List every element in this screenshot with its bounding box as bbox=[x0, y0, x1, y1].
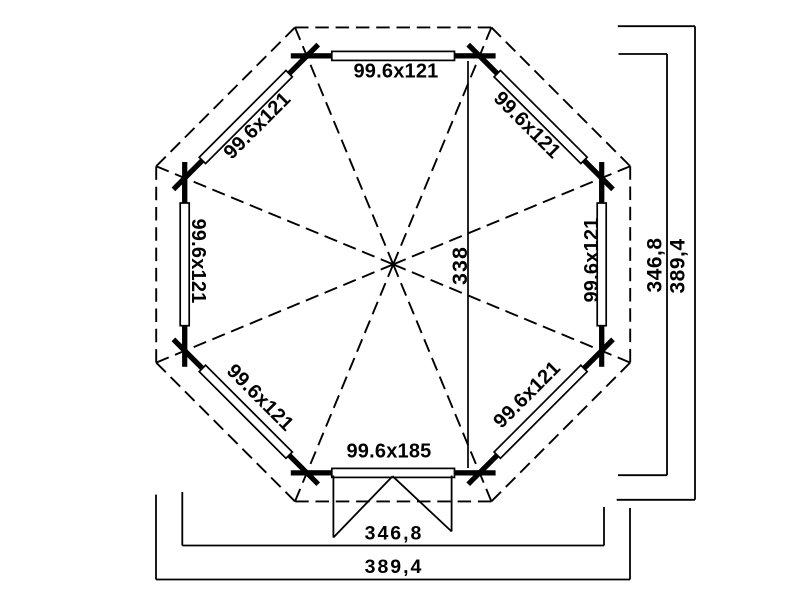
svg-text:338: 338 bbox=[448, 246, 472, 285]
svg-text:99.6x121: 99.6x121 bbox=[353, 61, 438, 83]
svg-text:346,8: 346,8 bbox=[644, 237, 667, 292]
svg-text:99.6x121: 99.6x121 bbox=[187, 218, 209, 303]
svg-text:99.6x185: 99.6x185 bbox=[346, 441, 431, 463]
svg-text:346,8: 346,8 bbox=[365, 523, 424, 545]
svg-text:389,4: 389,4 bbox=[667, 238, 690, 293]
svg-text:99.6x121: 99.6x121 bbox=[581, 217, 603, 302]
svg-text:389,4: 389,4 bbox=[365, 556, 424, 578]
